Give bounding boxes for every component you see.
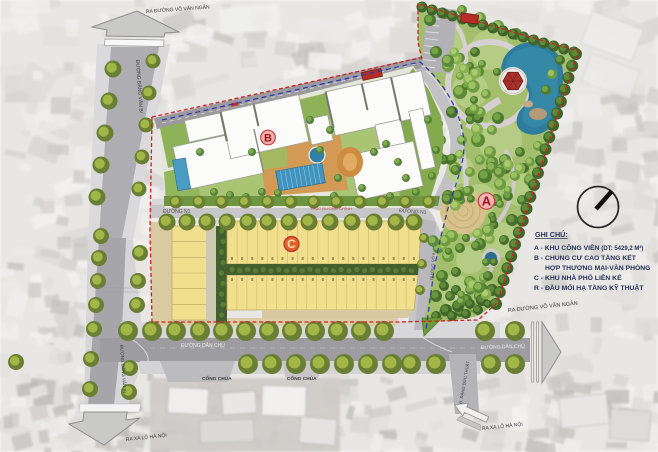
- svg-text:ĐƯỜNG N1: ĐƯỜNG N1: [163, 208, 191, 215]
- svg-text:ĐƯỜNG DÂN CHỦ: ĐƯỜNG DÂN CHỦ: [181, 342, 225, 349]
- svg-text:C: C: [287, 237, 296, 251]
- svg-text:B: B: [264, 133, 272, 145]
- svg-text:TRỤC ĐƯỜNG CHÍNH: TRỤC ĐƯỜNG CHÍNH: [310, 206, 352, 211]
- svg-text:HỢP THƯƠNG MẠI-VĂN PHÒNG: HỢP THƯƠNG MẠI-VĂN PHÒNG: [545, 263, 650, 272]
- svg-text:CỔNG CHÙA: CỔNG CHÙA: [202, 375, 232, 382]
- svg-text:GHI CHÚ:: GHI CHÚ:: [535, 230, 568, 239]
- svg-text:CỔNG CHÙA: CỔNG CHÙA: [287, 375, 317, 382]
- svg-text:A: A: [482, 194, 492, 209]
